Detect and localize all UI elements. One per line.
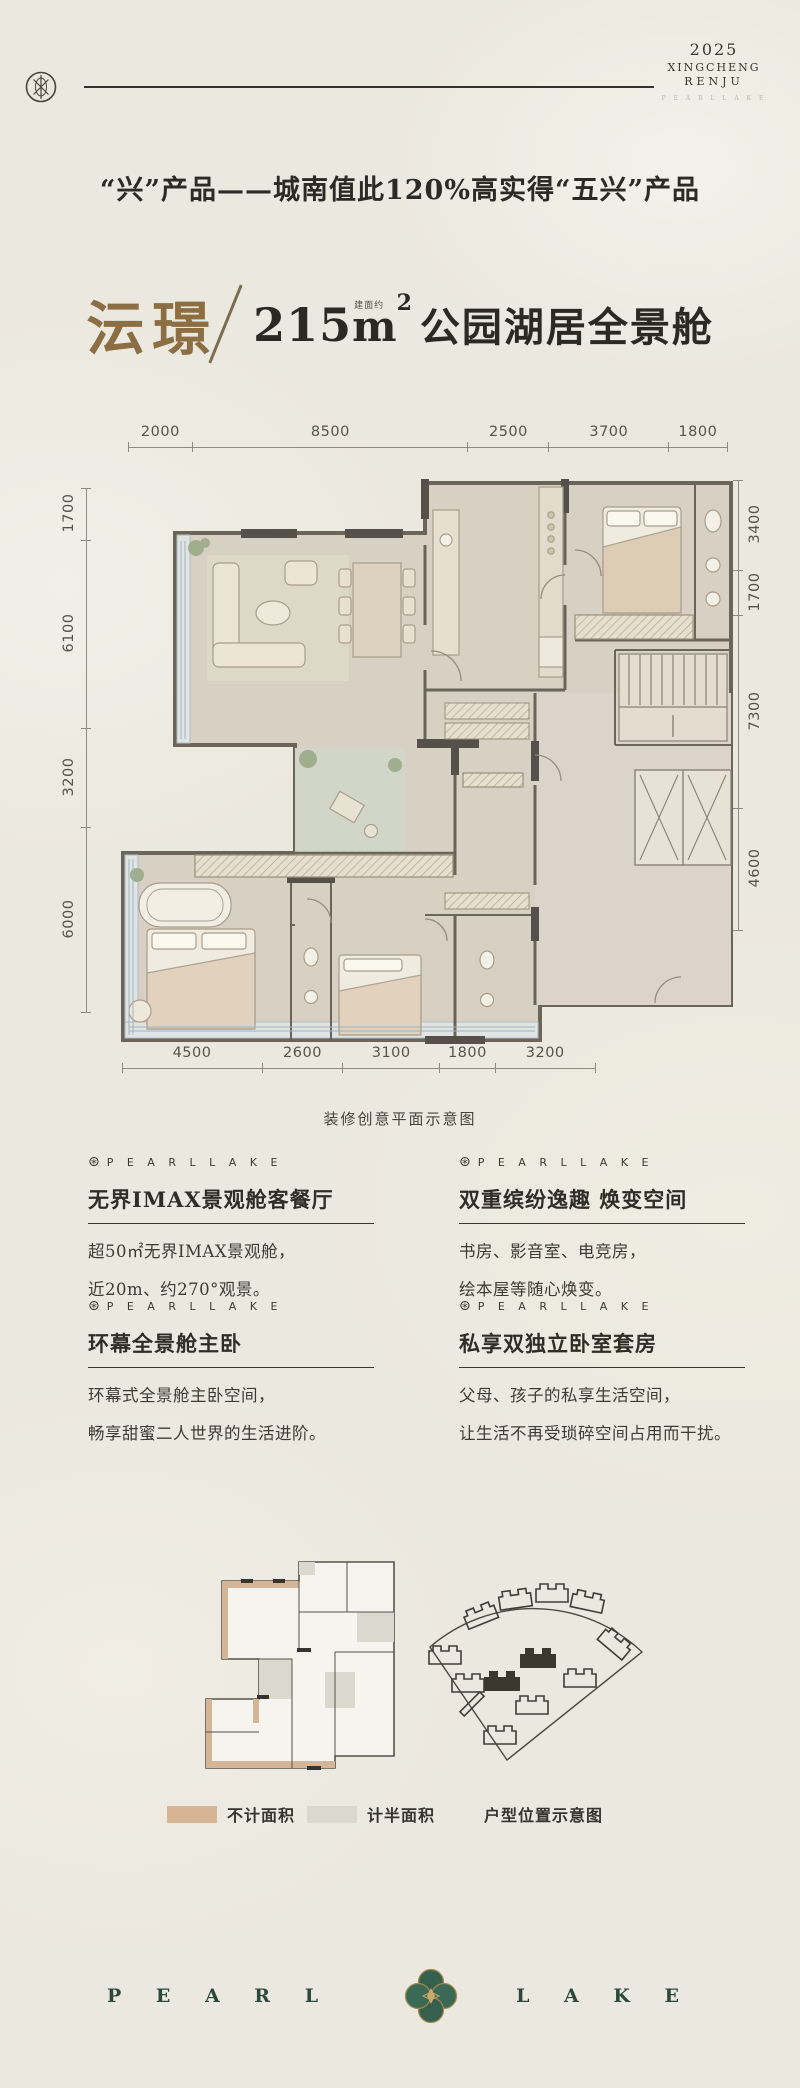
legend-label: 不计面积: [227, 1802, 295, 1826]
pearl-mark-icon: ⊛: [459, 1154, 471, 1170]
area-unit: 建面约 m2: [352, 302, 412, 351]
feature-rule: [88, 1367, 374, 1368]
unit-sup: 2: [397, 290, 412, 316]
dim-mark: [495, 1063, 496, 1073]
dim-mark: [738, 480, 739, 930]
keyplan-outline: [206, 1562, 394, 1768]
dim-label: 6100: [61, 593, 77, 673]
dim-label: 1700: [61, 473, 77, 553]
pearl-mark-icon: ⊛: [88, 1154, 100, 1170]
keyplan-svg: [197, 1552, 397, 1777]
footer-pearl: P E A R L: [107, 1985, 332, 2007]
dim-mark: [86, 488, 87, 1012]
feature-title: 双重缤纷逸趣 焕变空间: [459, 1184, 745, 1214]
dim-label: 7300: [747, 671, 763, 751]
brand-line1: XINGCHENG: [654, 61, 774, 74]
legend-item-half: 计半面积: [307, 1802, 435, 1826]
brand-tagline: P E A R L L A K E: [654, 95, 774, 102]
feature-line: 绘本屋等随心焕变。: [459, 1276, 745, 1300]
siteplan: [420, 1542, 655, 1767]
dim-label: 1800: [427, 1045, 507, 1061]
dim-mark: [668, 442, 669, 452]
product-title-row: 沄璟 215 建面约 m2 公园湖居全景舱: [0, 282, 800, 366]
dim-label: 8500: [290, 424, 370, 440]
pearl-mark-icon: ⊛: [88, 1298, 100, 1314]
dim-mark: [128, 447, 727, 448]
dim-mark: [81, 728, 91, 729]
dim-label: 1800: [658, 424, 738, 440]
dim-label: 4500: [152, 1045, 232, 1061]
dim-label: 2600: [262, 1045, 342, 1061]
dim-mark: [81, 827, 91, 828]
toilet-master: [304, 948, 318, 966]
feature-rule: [459, 1223, 745, 1224]
poster-page: 2025 XINGCHENG RENJU P E A R L L A K E “…: [0, 0, 800, 2088]
dim-mark: [548, 442, 549, 452]
feature-line: 环幕式全景舱主卧空间，: [88, 1382, 374, 1406]
dim-mark: [122, 1068, 595, 1069]
dim-mark: [595, 1063, 596, 1073]
feature-flex-space: ⊛P E A R L L A K E 双重缤纷逸趣 焕变空间 书房、影音室、电竞…: [459, 1154, 745, 1300]
closet-band: [195, 855, 453, 877]
legend-swatch-gray: [307, 1806, 357, 1823]
balcony-living: [177, 535, 190, 743]
feature-brand-label: P E A R L L A K E: [107, 1156, 283, 1169]
dim-mark: [342, 1063, 343, 1073]
dim-mark: [81, 1012, 91, 1013]
bathtub: [139, 883, 231, 927]
area-note: 建面约: [354, 298, 384, 311]
area-number: 215: [253, 298, 352, 352]
elevators: [635, 770, 731, 865]
brand-mark-icon: [24, 70, 58, 104]
footer-lake: L A K E: [516, 1985, 693, 2007]
feature-title: 无界IMAX景观舱客餐厅: [88, 1184, 374, 1214]
dim-mark: [192, 442, 193, 452]
headline: “兴”产品——城南值此120%高实得“五兴”产品: [0, 168, 800, 207]
plan-caption: 装修创意平面示意图: [0, 1108, 800, 1129]
header-brand-block: 2025 XINGCHENG RENJU P E A R L L A K E: [654, 40, 774, 102]
header-rule: [84, 86, 654, 88]
dim-mark: [262, 1063, 263, 1073]
feature-line: 书房、影音室、电竞房，: [459, 1238, 745, 1262]
siteplan-label: 户型位置示意图: [484, 1802, 603, 1826]
dim-label: 6000: [61, 879, 77, 959]
dining-set: [339, 563, 415, 657]
dim-mark: [467, 442, 468, 452]
feature-rule: [459, 1367, 745, 1368]
feature-rule: [88, 1223, 374, 1224]
legend-item-uncounted: 不计面积: [167, 1802, 295, 1826]
dim-mark: [122, 1063, 123, 1073]
feature-master: ⊛P E A R L L A K E 环幕全景舱主卧 环幕式全景舱主卧空间， 畅…: [88, 1298, 374, 1444]
feature-brand: ⊛P E A R L L A K E: [459, 1298, 745, 1314]
dim-label: 3100: [351, 1045, 431, 1061]
dim-label: 4600: [747, 828, 763, 908]
feature-line: 超50㎡无界IMAX景观舱，: [88, 1238, 374, 1262]
feature-brand-label: P E A R L L A K E: [107, 1300, 283, 1313]
legend-label: 计半面积: [367, 1802, 435, 1826]
dim-label: 3200: [505, 1045, 585, 1061]
dim-label: 3200: [61, 737, 77, 817]
feature-brand: ⊛P E A R L L A K E: [88, 1298, 374, 1314]
dim-mark: [81, 540, 91, 541]
feature-line: 让生活不再受琐碎空间占用而干扰。: [459, 1420, 745, 1444]
dim-mark: [81, 488, 91, 489]
dim-label: 3700: [569, 424, 649, 440]
ottoman: [129, 1000, 151, 1022]
siteplan-svg: [420, 1542, 655, 1767]
quatrefoil-emblem-icon: [404, 1968, 458, 2024]
floorplan-svg: [95, 455, 735, 1045]
dim-mark: [727, 442, 728, 452]
pearl-mark-icon: ⊛: [459, 1298, 471, 1314]
feature-line: 畅享甜蜜二人世界的生活进阶。: [88, 1420, 374, 1444]
dim-mark: [128, 442, 129, 452]
circled-flower-icon: [24, 70, 58, 104]
feature-line: 父母、孩子的私享生活空间，: [459, 1382, 745, 1406]
feature-brand-label: P E A R L L A K E: [478, 1300, 654, 1313]
coffee-table: [256, 601, 290, 625]
feature-suites: ⊛P E A R L L A K E 私享双独立卧室套房 父母、孩子的私享生活空…: [459, 1298, 745, 1444]
brand-year: 2025: [654, 40, 774, 59]
brand-line2: RENJU: [654, 75, 774, 88]
feature-title: 私享双独立卧室套房: [459, 1328, 745, 1358]
area-text: 215 建面约 m2 公园湖居全景舱: [253, 295, 714, 353]
dim-mark: [439, 1063, 440, 1073]
feature-brand: ⊛P E A R L L A K E: [88, 1154, 374, 1170]
floorplan: [95, 455, 735, 1045]
keyplan: [197, 1552, 397, 1777]
footer: P E A R L L A K E: [0, 1968, 800, 2024]
dim-label: 2000: [120, 424, 200, 440]
dim-label: 2500: [468, 424, 548, 440]
dim-label: 3400: [747, 484, 763, 564]
feature-title: 环幕全景舱主卧: [88, 1328, 374, 1358]
site-buildings-highlight: [484, 1648, 556, 1691]
feature-brand: ⊛P E A R L L A K E: [459, 1154, 745, 1170]
product-desc: 公园湖居全景舱: [420, 295, 714, 353]
feature-brand-label: P E A R L L A K E: [478, 1156, 654, 1169]
dim-label: 1700: [747, 552, 763, 632]
feature-line: 近20m、约270°观景。: [88, 1276, 374, 1300]
feature-living: ⊛P E A R L L A K E 无界IMAX景观舱客餐厅 超50㎡无界IM…: [88, 1154, 374, 1300]
stairs: [619, 654, 727, 741]
product-name: 沄璟: [86, 282, 218, 366]
legend-swatch-tan: [167, 1806, 217, 1823]
